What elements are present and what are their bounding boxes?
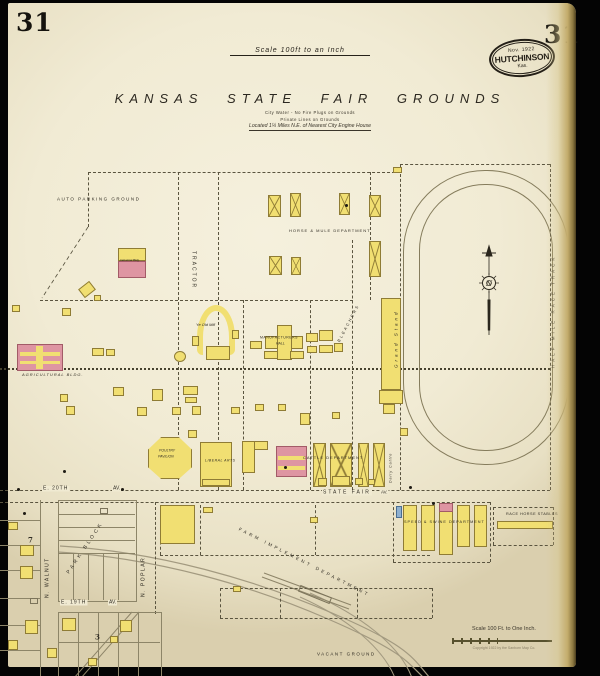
hydrant-dot	[17, 488, 20, 491]
boundary-line	[155, 502, 156, 614]
map-building	[36, 346, 43, 369]
map-building	[8, 640, 18, 650]
map-building	[242, 441, 255, 473]
boundary-line	[220, 588, 221, 618]
map-building	[47, 648, 57, 658]
map-building	[278, 456, 305, 460]
hydrant-dot	[345, 204, 348, 207]
lot-line	[118, 612, 119, 676]
map-label: VACANT GROUND	[317, 652, 376, 657]
lot-line	[58, 540, 135, 541]
map-building	[393, 167, 402, 173]
lot-line	[98, 612, 99, 676]
map-building	[203, 507, 213, 513]
map-label: Dairy Cattle	[389, 453, 393, 483]
map-label: 3	[95, 634, 100, 641]
map-building	[369, 195, 381, 217]
hydrant-dot	[432, 502, 435, 505]
map-label: PAVILION	[158, 455, 174, 459]
map-building	[310, 517, 318, 523]
map-label: LIBERAL ARTS	[205, 459, 235, 463]
map-label: AV.	[112, 486, 121, 491]
map-label: HORSE & MULE DEPARTMENT	[289, 229, 371, 233]
map-building	[307, 346, 317, 353]
map-label: Grand Stand	[394, 309, 399, 368]
boundary-line	[0, 490, 550, 491]
map-building	[278, 404, 286, 411]
map-building	[268, 195, 281, 217]
map-label: AUTO PARKING GROUND	[57, 197, 140, 202]
map-building	[160, 505, 195, 544]
map-building	[332, 412, 340, 419]
map-building	[62, 618, 76, 631]
scale-bar	[452, 637, 552, 643]
map-building	[62, 308, 71, 316]
scale-caption: Scale 100 Ft. to One Inch.	[452, 626, 556, 632]
boundary-line	[432, 588, 433, 618]
map-label: AV.	[380, 490, 389, 495]
map-building	[400, 428, 408, 436]
map-building	[88, 658, 97, 666]
map-label: AGRICULTURAL BLDG.	[22, 373, 84, 377]
map-building	[290, 193, 301, 217]
map-label: POULTRY	[159, 449, 175, 453]
subtitle-location-text: Located 1¼ Miles N.E. of Nearest City En…	[249, 123, 371, 131]
map-building	[255, 404, 264, 411]
map-label: N. POPLAR	[141, 557, 146, 597]
lot-line	[58, 553, 135, 554]
map-building	[100, 508, 108, 514]
map-building	[137, 407, 147, 416]
boundary-line	[310, 300, 311, 490]
subtitle-lines-note: Private Lines on Grounds	[160, 117, 460, 122]
map-building	[152, 389, 163, 401]
boundary-line	[400, 164, 550, 165]
map-building	[120, 620, 132, 632]
map-building	[25, 620, 38, 634]
map-building	[250, 341, 262, 349]
map-label: CATTLE DEPARTMENT	[303, 456, 363, 460]
scale-bar-ticks	[452, 638, 498, 644]
boundary-line	[352, 240, 353, 490]
lot-line	[138, 612, 139, 676]
map-building	[334, 343, 343, 352]
boundary-line	[0, 368, 550, 370]
hydrant-dot	[284, 466, 287, 469]
map-building	[396, 506, 402, 518]
boundary-line	[220, 618, 432, 619]
lot-line	[78, 612, 79, 676]
map-label: TRACTOR	[191, 251, 196, 289]
map-label: STATE FAIR	[322, 490, 372, 495]
map-building	[30, 598, 38, 604]
map-building	[192, 336, 199, 346]
map-label: E. 20TH	[42, 486, 69, 491]
boundary-line	[200, 505, 201, 555]
map-building	[206, 346, 230, 360]
boundary-line	[493, 545, 553, 546]
map-building	[264, 351, 278, 359]
map-building	[231, 407, 240, 414]
map-building	[110, 636, 118, 643]
map-building	[497, 521, 553, 529]
map-building	[66, 406, 75, 415]
boundary-line	[393, 562, 490, 563]
map-building	[318, 478, 327, 486]
boundary-line	[315, 505, 316, 555]
lot-line	[58, 642, 160, 643]
map-building	[319, 330, 333, 341]
hydrant-dot	[63, 470, 66, 473]
map-building	[113, 387, 124, 396]
map-building	[332, 476, 350, 486]
map-label: 7	[28, 537, 33, 544]
map-building	[474, 505, 487, 547]
lot-line	[88, 553, 89, 600]
map-building	[355, 478, 363, 485]
hydrant-dot	[121, 488, 124, 491]
page-edge	[546, 3, 576, 667]
map-building	[269, 256, 282, 275]
boundary-line	[490, 502, 491, 562]
map-building	[20, 566, 33, 579]
map-label: Industrial Bldg.	[120, 259, 140, 262]
lot-line	[118, 553, 119, 600]
copyright-line: Copyright 1922 by the Sanborn Map Co.	[448, 646, 560, 650]
lot-line	[0, 650, 40, 651]
boundary-line	[393, 502, 394, 562]
map-building	[306, 333, 318, 342]
map-building	[439, 503, 453, 512]
map-building	[20, 545, 34, 556]
map-building	[118, 261, 146, 278]
map-page: N AUTO PARKING GROUNDHORSE & MULE DEPART…	[0, 0, 600, 676]
lot-line	[103, 553, 104, 600]
map-building	[12, 305, 20, 312]
scale-note: Scale 100ft to an Inch	[230, 47, 370, 56]
map-building	[368, 479, 375, 485]
boundary-line	[493, 507, 494, 545]
stamp-ring	[491, 40, 553, 76]
map-building	[421, 505, 435, 551]
map-building	[60, 394, 68, 402]
map-label: SPEED & SWINE DEPARTMENT	[404, 520, 485, 524]
map-building	[290, 351, 304, 359]
boundary-line	[220, 588, 432, 589]
map-building	[319, 345, 333, 353]
map-building	[188, 430, 197, 438]
map-building	[369, 241, 381, 277]
map-building	[383, 404, 395, 414]
boundary-line	[88, 172, 395, 173]
boundary-line	[370, 172, 371, 300]
map-building	[457, 505, 470, 547]
map-building	[192, 406, 201, 415]
map-label: AV.	[108, 600, 117, 605]
map-building	[185, 397, 197, 403]
map-building	[106, 349, 115, 356]
map-building	[8, 522, 18, 530]
map-building	[172, 407, 181, 415]
lot-line	[40, 500, 41, 676]
page-title: KANSAS STATE FAIR GROUNDS	[100, 91, 520, 106]
map-building	[276, 446, 307, 477]
map-building	[92, 348, 104, 356]
map-building	[278, 466, 305, 470]
map-building	[233, 586, 241, 592]
lot-line	[0, 520, 40, 521]
map-label: HALL	[276, 342, 285, 346]
boundary-line	[493, 507, 553, 508]
map-label: BLEACHERS	[337, 304, 361, 343]
map-building	[174, 351, 186, 362]
map-building	[291, 257, 301, 275]
map-label: E. 19TH	[60, 600, 87, 605]
lot-line	[58, 500, 137, 602]
page-number-left: 31	[16, 8, 53, 37]
map-label: MANUFACTURERS	[260, 336, 298, 340]
map-building	[232, 330, 239, 339]
subtitle-location-note: Located 1¼ Miles N.E. of Nearest City En…	[160, 123, 460, 129]
map-label: N. WALNUT	[45, 557, 50, 598]
map-building	[94, 295, 101, 301]
hydrant-dot	[409, 486, 412, 489]
boundary-line	[40, 300, 353, 301]
boundary-line	[280, 588, 281, 618]
map-building	[183, 386, 198, 395]
subtitle-water-note: City Water - No Fire Plugs on Grounds	[160, 110, 460, 115]
map-building	[379, 390, 403, 404]
map-building	[300, 413, 310, 425]
map-building	[403, 505, 417, 551]
lot-line	[58, 514, 135, 515]
map-label: Ye Old Mill	[196, 323, 215, 327]
map-building	[202, 479, 230, 486]
hydrant-dot	[23, 512, 26, 515]
